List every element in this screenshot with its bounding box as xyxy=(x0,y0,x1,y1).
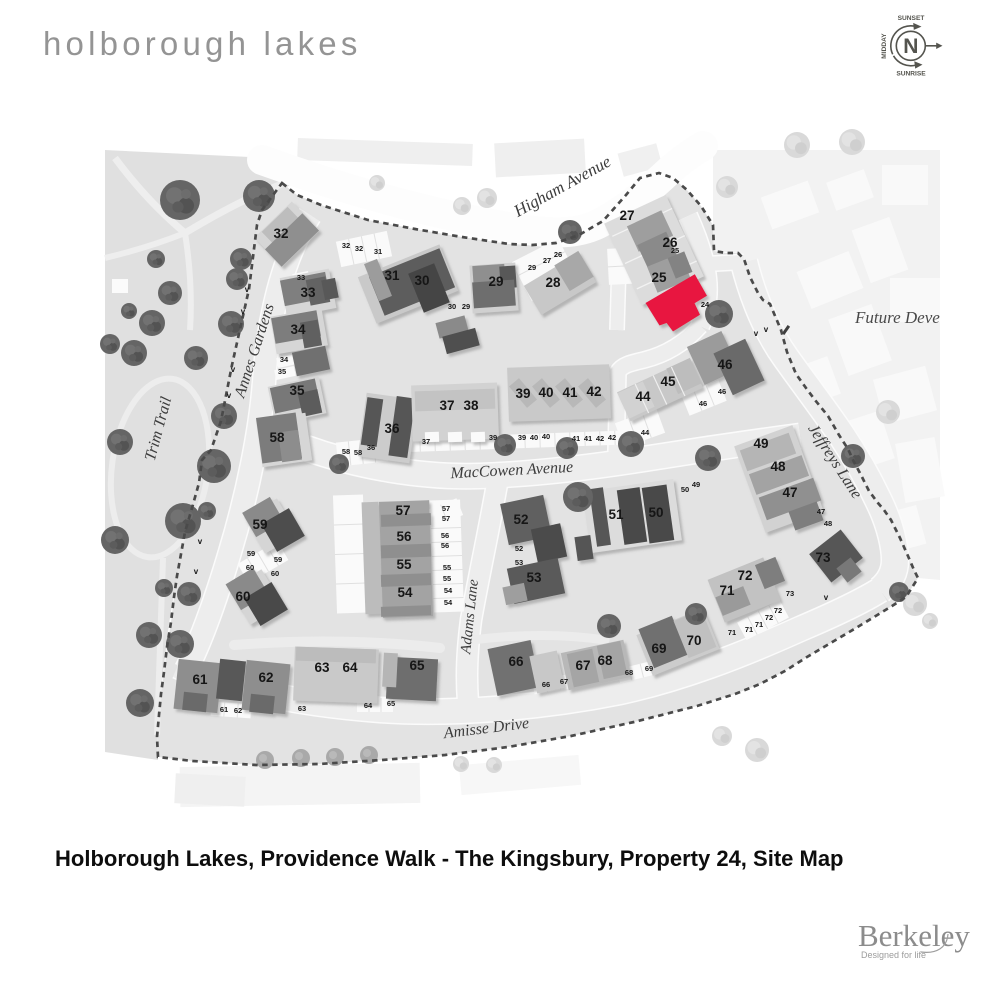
svg-text:29: 29 xyxy=(528,263,536,272)
svg-text:64: 64 xyxy=(364,701,373,710)
svg-text:54: 54 xyxy=(397,585,413,600)
svg-text:v: v xyxy=(241,307,246,316)
svg-text:SUNRISE: SUNRISE xyxy=(896,71,926,78)
svg-text:33: 33 xyxy=(297,273,305,282)
svg-text:46: 46 xyxy=(718,387,726,396)
svg-text:37: 37 xyxy=(422,437,430,446)
svg-text:27: 27 xyxy=(543,256,551,265)
svg-text:49: 49 xyxy=(753,436,768,451)
svg-text:58: 58 xyxy=(342,447,350,456)
svg-text:68: 68 xyxy=(625,668,633,677)
svg-text:MIDDAY: MIDDAY xyxy=(881,33,888,59)
svg-text:37: 37 xyxy=(439,398,454,413)
svg-text:58: 58 xyxy=(354,448,362,457)
svg-text:Holborough Lakes, Providence W: Holborough Lakes, Providence Walk - The … xyxy=(55,846,844,871)
svg-text:69: 69 xyxy=(645,664,653,673)
svg-text:49: 49 xyxy=(692,480,700,489)
svg-text:41: 41 xyxy=(562,385,578,400)
svg-text:72: 72 xyxy=(737,568,752,583)
svg-text:v: v xyxy=(227,391,232,400)
svg-text:39: 39 xyxy=(518,433,526,442)
svg-text:Berkeley: Berkeley xyxy=(858,918,970,953)
svg-text:56: 56 xyxy=(441,541,449,550)
svg-text:29: 29 xyxy=(488,274,503,289)
svg-text:32: 32 xyxy=(273,226,288,241)
svg-text:50: 50 xyxy=(648,505,663,520)
svg-text:52: 52 xyxy=(515,544,523,553)
svg-text:72: 72 xyxy=(765,613,773,622)
svg-text:66: 66 xyxy=(542,680,550,689)
svg-text:46: 46 xyxy=(699,399,707,408)
svg-text:Designed for life: Designed for life xyxy=(861,950,926,960)
svg-text:57: 57 xyxy=(442,504,450,513)
svg-text:30: 30 xyxy=(414,273,429,288)
svg-text:40: 40 xyxy=(538,385,553,400)
svg-text:63: 63 xyxy=(298,704,306,713)
svg-text:70: 70 xyxy=(686,633,701,648)
svg-text:71: 71 xyxy=(745,625,753,634)
svg-text:45: 45 xyxy=(660,374,676,389)
svg-text:60: 60 xyxy=(271,569,279,578)
svg-text:71: 71 xyxy=(719,583,735,598)
svg-text:31: 31 xyxy=(384,268,400,283)
svg-text:34: 34 xyxy=(280,355,289,364)
svg-text:44: 44 xyxy=(641,428,650,437)
svg-text:Future Deve: Future Deve xyxy=(854,308,940,327)
svg-text:57: 57 xyxy=(395,503,410,518)
svg-text:53: 53 xyxy=(515,558,523,567)
svg-text:62: 62 xyxy=(234,706,242,715)
svg-text:31: 31 xyxy=(374,247,382,256)
svg-text:54: 54 xyxy=(444,586,453,595)
svg-text:61: 61 xyxy=(192,672,208,687)
svg-text:41: 41 xyxy=(584,434,592,443)
svg-text:48: 48 xyxy=(824,519,832,528)
svg-text:65: 65 xyxy=(409,658,425,673)
svg-text:62: 62 xyxy=(258,670,273,685)
svg-text:v: v xyxy=(824,593,829,602)
svg-text:35: 35 xyxy=(278,367,286,376)
svg-text:38: 38 xyxy=(463,398,479,413)
svg-text:59: 59 xyxy=(252,517,267,532)
svg-text:35: 35 xyxy=(289,383,305,398)
svg-text:34: 34 xyxy=(290,322,306,337)
svg-text:44: 44 xyxy=(635,389,651,404)
svg-text:66: 66 xyxy=(508,654,524,669)
svg-text:N: N xyxy=(903,35,918,58)
svg-text:71: 71 xyxy=(728,628,736,637)
svg-text:40: 40 xyxy=(542,432,550,441)
svg-text:SUNSET: SUNSET xyxy=(898,15,925,22)
svg-text:40: 40 xyxy=(530,433,538,442)
svg-text:64: 64 xyxy=(342,660,358,675)
svg-text:30: 30 xyxy=(448,302,456,311)
svg-text:33: 33 xyxy=(300,285,316,300)
svg-text:55: 55 xyxy=(443,563,451,572)
svg-text:42: 42 xyxy=(596,434,604,443)
svg-text:42: 42 xyxy=(608,433,616,442)
svg-text:25: 25 xyxy=(671,246,679,255)
svg-text:27: 27 xyxy=(619,208,634,223)
svg-text:55: 55 xyxy=(396,557,412,572)
svg-text:55: 55 xyxy=(443,574,451,583)
svg-text:28: 28 xyxy=(545,275,561,290)
svg-text:56: 56 xyxy=(396,529,412,544)
svg-text:24: 24 xyxy=(701,300,710,309)
svg-text:42: 42 xyxy=(586,384,601,399)
svg-text:v: v xyxy=(198,537,203,546)
svg-text:holborough lakes: holborough lakes xyxy=(43,25,362,62)
svg-text:73: 73 xyxy=(786,589,794,598)
svg-text:29: 29 xyxy=(462,302,470,311)
svg-text:32: 32 xyxy=(342,241,350,250)
svg-text:26: 26 xyxy=(554,250,562,259)
svg-text:68: 68 xyxy=(597,653,613,668)
svg-text:36: 36 xyxy=(367,443,375,452)
svg-text:59: 59 xyxy=(274,555,282,564)
svg-text:39: 39 xyxy=(489,433,497,442)
svg-text:73: 73 xyxy=(815,550,831,565)
svg-text:65: 65 xyxy=(387,699,395,708)
svg-text:59: 59 xyxy=(247,549,255,558)
svg-text:56: 56 xyxy=(441,531,449,540)
svg-text:52: 52 xyxy=(513,512,528,527)
svg-text:36: 36 xyxy=(384,421,400,436)
svg-text:v: v xyxy=(754,329,759,338)
svg-text:63: 63 xyxy=(314,660,330,675)
svg-text:50: 50 xyxy=(681,485,689,494)
svg-text:46: 46 xyxy=(717,357,733,372)
svg-text:v: v xyxy=(231,365,236,374)
svg-text:v: v xyxy=(764,325,769,334)
svg-text:57: 57 xyxy=(442,514,450,523)
svg-text:58: 58 xyxy=(269,430,285,445)
svg-text:25: 25 xyxy=(651,270,667,285)
svg-text:47: 47 xyxy=(817,507,825,516)
svg-text:54: 54 xyxy=(444,598,453,607)
svg-text:53: 53 xyxy=(526,570,542,585)
svg-text:69: 69 xyxy=(651,641,666,656)
svg-text:v: v xyxy=(194,567,199,576)
svg-text:v: v xyxy=(245,285,250,294)
svg-text:60: 60 xyxy=(235,589,250,604)
svg-text:51: 51 xyxy=(608,507,624,522)
svg-text:41: 41 xyxy=(572,434,580,443)
svg-text:32: 32 xyxy=(355,244,363,253)
svg-text:61: 61 xyxy=(220,705,228,714)
svg-text:39: 39 xyxy=(515,386,530,401)
svg-text:72: 72 xyxy=(774,606,782,615)
svg-text:67: 67 xyxy=(575,658,590,673)
svg-text:60: 60 xyxy=(246,563,254,572)
svg-text:47: 47 xyxy=(782,485,797,500)
svg-text:48: 48 xyxy=(770,459,786,474)
svg-text:67: 67 xyxy=(560,677,568,686)
svg-text:71: 71 xyxy=(755,620,763,629)
